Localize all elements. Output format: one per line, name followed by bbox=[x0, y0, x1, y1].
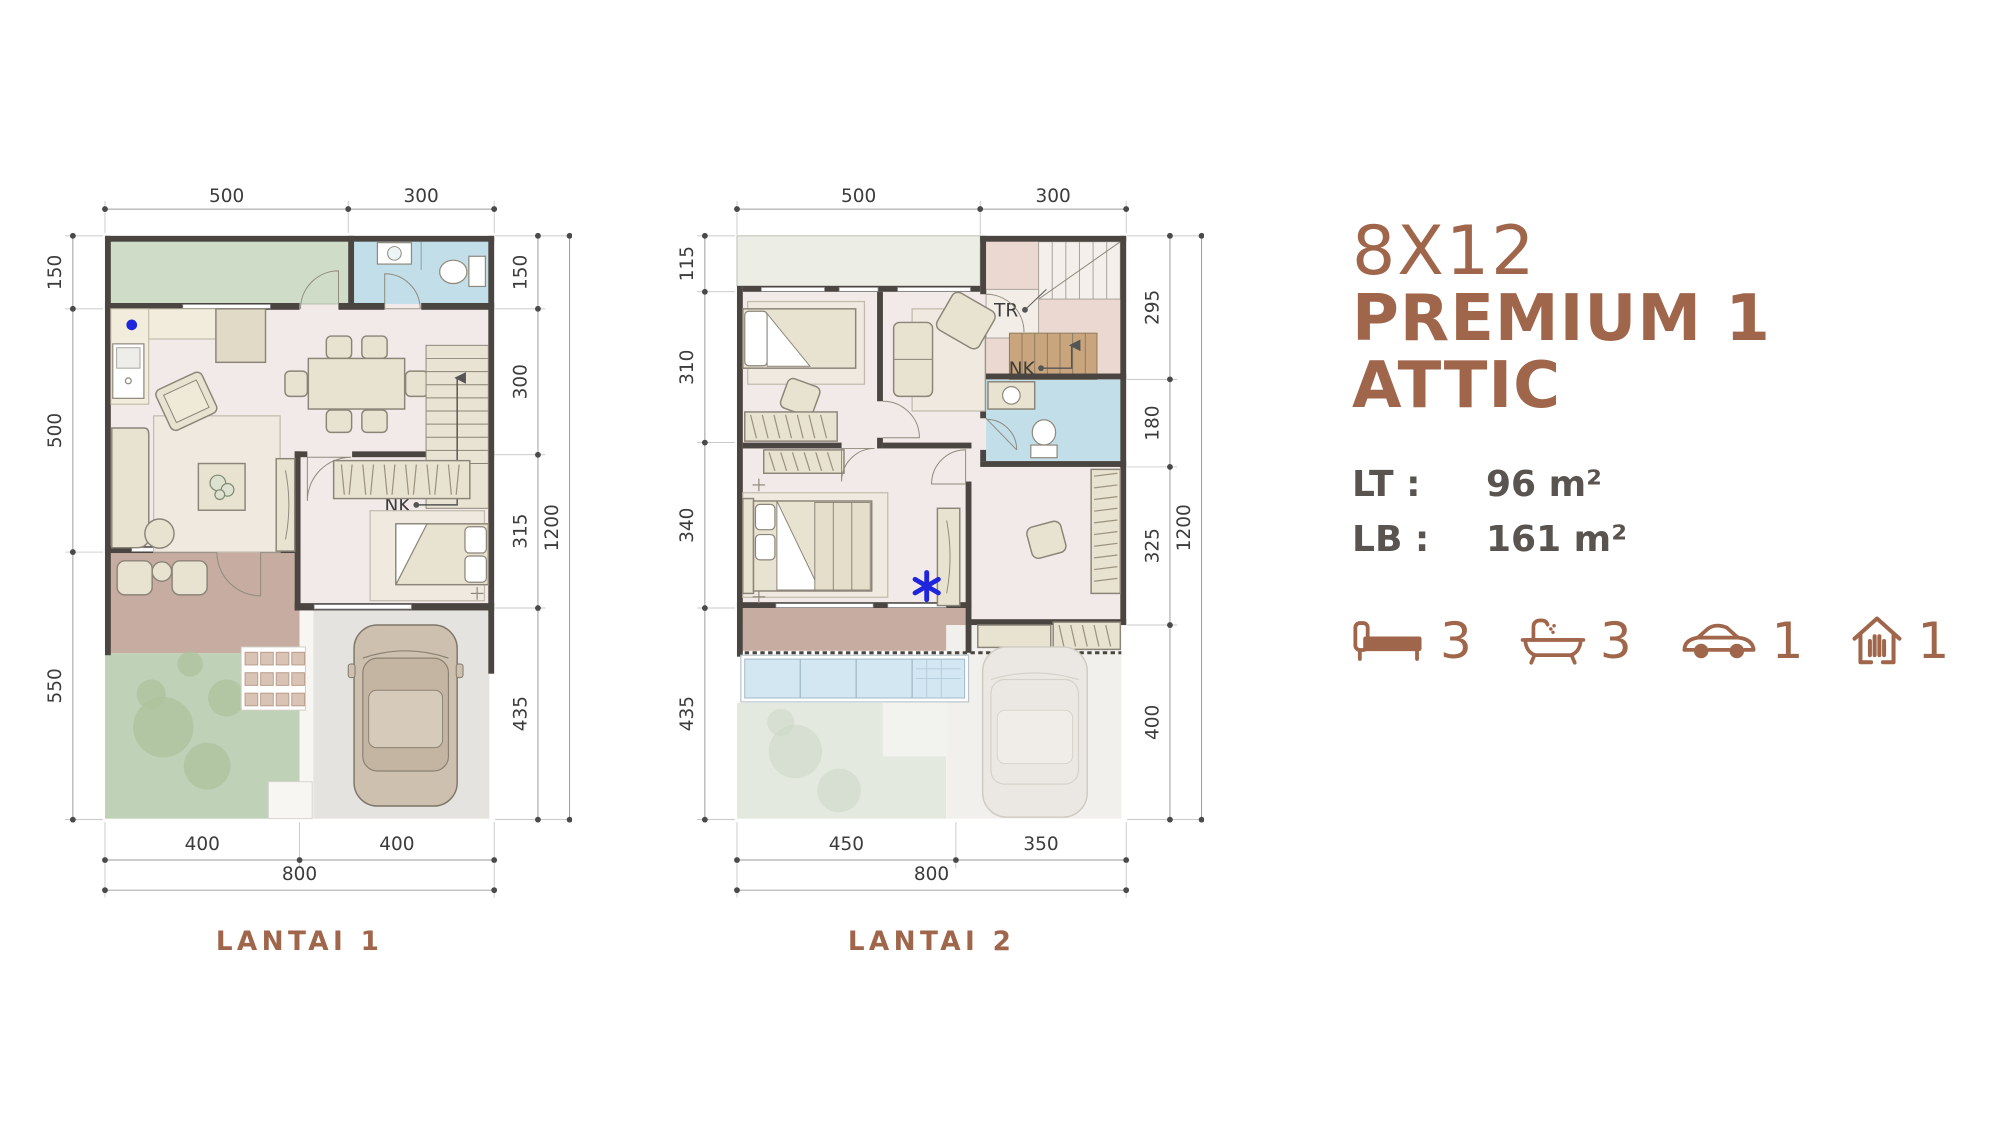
lt-label: LT : bbox=[1352, 464, 1462, 505]
floor2-title: LANTAI 2 bbox=[848, 927, 1015, 956]
svg-text:300: 300 bbox=[510, 364, 531, 399]
pouf bbox=[145, 519, 174, 548]
svg-text:500: 500 bbox=[45, 413, 66, 448]
svg-text:500: 500 bbox=[841, 186, 876, 207]
svg-text:340: 340 bbox=[677, 508, 698, 543]
svg-text:500: 500 bbox=[209, 186, 244, 207]
svg-text:435: 435 bbox=[510, 696, 531, 731]
feature-bathrooms: 3 bbox=[1520, 612, 1632, 670]
sofa bbox=[112, 428, 149, 548]
terrace-chair bbox=[172, 561, 207, 595]
lb-value: 161 m² bbox=[1486, 519, 1627, 560]
area-specs: LT : 96 m² LB : 161 m² bbox=[1352, 464, 2001, 560]
svg-text:315: 315 bbox=[510, 514, 531, 549]
wardrobe1 bbox=[334, 461, 470, 499]
bath-icon bbox=[1520, 616, 1586, 666]
svg-text:180: 180 bbox=[1142, 406, 1163, 441]
car-icon bbox=[1680, 620, 1758, 662]
plot-size-title: 8X12 bbox=[1352, 218, 2001, 286]
product-title: PREMIUM 1 ATTIC bbox=[1352, 286, 2001, 420]
car-ghost bbox=[983, 647, 1088, 817]
svg-text:300: 300 bbox=[1036, 186, 1071, 207]
bed-icon bbox=[1352, 619, 1426, 663]
svg-text:310: 310 bbox=[677, 350, 698, 385]
svg-text:150: 150 bbox=[510, 255, 531, 290]
wardrobe2 bbox=[745, 412, 837, 441]
balcony bbox=[743, 608, 966, 651]
rear-bench bbox=[978, 625, 1051, 647]
svg-text:115: 115 bbox=[677, 246, 698, 281]
front-terrace bbox=[110, 241, 351, 304]
svg-text:400: 400 bbox=[379, 834, 414, 855]
svg-text:550: 550 bbox=[45, 668, 66, 703]
tiles-ghost bbox=[883, 703, 946, 757]
svg-text:400: 400 bbox=[185, 834, 220, 855]
bedroom-count: 3 bbox=[1440, 612, 1472, 670]
lt-value: 96 m² bbox=[1486, 464, 1602, 505]
svg-text:800: 800 bbox=[914, 864, 949, 885]
kitchen-marker-dot bbox=[126, 320, 137, 331]
info-panel: 8X12 PREMIUM 1 ATTIC LT : 96 m² LB : 161… bbox=[1352, 218, 2001, 670]
svg-text:350: 350 bbox=[1023, 834, 1058, 855]
floor2-tr-label: TR bbox=[993, 301, 1018, 322]
rear-bench-hatched bbox=[1053, 622, 1120, 649]
carport-count: 1 bbox=[1772, 612, 1804, 670]
attic-count: 1 bbox=[1917, 612, 1949, 670]
svg-text:295: 295 bbox=[1142, 290, 1163, 325]
svg-text:325: 325 bbox=[1142, 528, 1163, 563]
feature-icons-row: 3 3 1 bbox=[1352, 612, 2001, 670]
feature-attic: 1 bbox=[1851, 612, 1949, 670]
svg-text:800: 800 bbox=[282, 864, 317, 885]
kitchen-island bbox=[216, 309, 266, 363]
car bbox=[348, 625, 463, 806]
stepping-tiles bbox=[241, 647, 305, 710]
svg-text:300: 300 bbox=[404, 186, 439, 207]
svg-text:150: 150 bbox=[45, 255, 66, 290]
brochure-canvas: NK bbox=[0, 0, 2001, 1126]
toilet2 bbox=[1031, 420, 1057, 458]
floor-plan-lantai-2: TR NK bbox=[664, 153, 1204, 956]
terrace-table bbox=[152, 562, 171, 581]
lb-label: LB : bbox=[1352, 519, 1462, 560]
lb-row: LB : 161 m² bbox=[1352, 519, 2001, 560]
wardrobe-master bbox=[764, 450, 844, 473]
svg-text:450: 450 bbox=[829, 834, 864, 855]
floor1-title: LANTAI 1 bbox=[216, 927, 383, 956]
attic-icon bbox=[1851, 615, 1903, 667]
tv-console-master bbox=[937, 508, 959, 605]
headboard bbox=[743, 499, 754, 594]
svg-text:1200: 1200 bbox=[1174, 504, 1195, 551]
floor-plan-lantai-1: NK bbox=[32, 153, 572, 956]
svg-text:435: 435 bbox=[677, 696, 698, 731]
garden-pad bbox=[268, 782, 312, 819]
svg-text:400: 400 bbox=[1142, 705, 1163, 740]
wardrobe-rear bbox=[1091, 469, 1120, 593]
svg-text:1200: 1200 bbox=[542, 504, 563, 551]
dining-table bbox=[308, 358, 404, 409]
feature-carport: 1 bbox=[1680, 612, 1804, 670]
bathroom-count: 3 bbox=[1600, 612, 1632, 670]
roof-strip bbox=[737, 236, 980, 286]
lt-row: LT : 96 m² bbox=[1352, 464, 2001, 505]
terrace-chair bbox=[117, 561, 152, 595]
feature-bedrooms: 3 bbox=[1352, 612, 1472, 670]
